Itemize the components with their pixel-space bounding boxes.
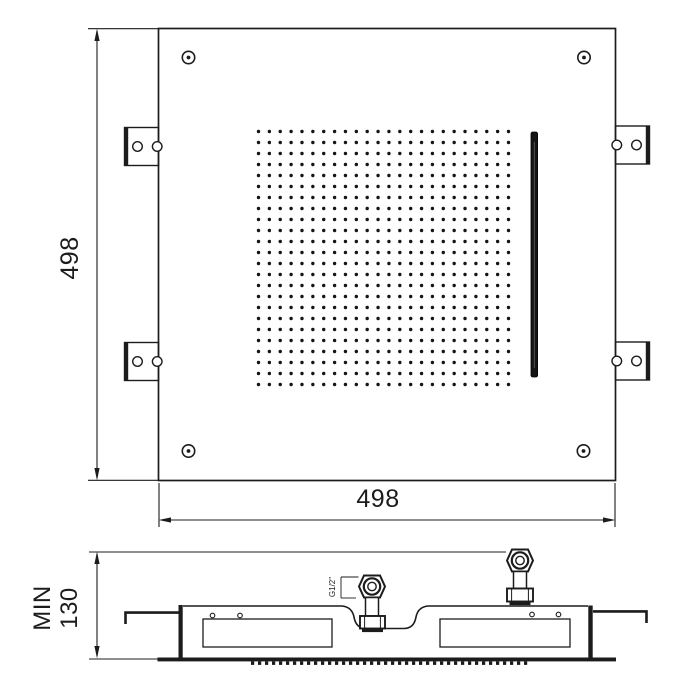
mounting-bracket-right-bottom: [612, 342, 650, 380]
chamber-left: [203, 619, 332, 647]
dimension-height-label: 498: [57, 219, 83, 297]
dimension-height: [88, 29, 158, 481]
drawing-linework: [0, 0, 685, 700]
plan-view: [88, 29, 650, 528]
ceiling-flange-right: [593, 611, 647, 623]
screw-icon: [182, 51, 194, 63]
screw-icon: [578, 51, 590, 63]
nozzle-grid: [257, 130, 510, 386]
screw-icon: [577, 445, 589, 457]
waterfall-slot: [531, 132, 538, 377]
arrow-right-icon: [603, 517, 615, 522]
arrow-left-icon: [159, 517, 171, 522]
corner-screws: [182, 51, 590, 457]
arrow-down-icon: [94, 468, 99, 480]
face-plate: [158, 658, 617, 662]
body-profile: [158, 605, 617, 661]
inlet-connector-right: [507, 550, 533, 606]
thread-size-label: G1/2": [328, 572, 338, 602]
thread-callout: [341, 577, 359, 598]
inlet-connector-left: [359, 576, 385, 633]
dimension-width-label: 498: [340, 486, 416, 512]
ceiling-flange-left: [126, 613, 180, 624]
shower-head-technical-drawing: 498 498 MIN 130 G1/2": [0, 0, 685, 700]
arrow-up-icon: [94, 552, 99, 564]
mounting-bracket-right-top: [612, 126, 650, 164]
panel-outline: [159, 29, 616, 481]
screw-icon: [182, 445, 194, 457]
chamber-right: [440, 619, 570, 647]
arrow-down-icon: [94, 646, 99, 658]
spray-nozzle-teeth: [251, 662, 527, 665]
side-view: [89, 550, 647, 665]
mounting-bracket-left-top: [125, 128, 163, 166]
dimension-depth-label: MIN 130: [29, 553, 83, 663]
mounting-bracket-left-bottom: [125, 343, 163, 381]
arrow-up-icon: [94, 29, 99, 41]
